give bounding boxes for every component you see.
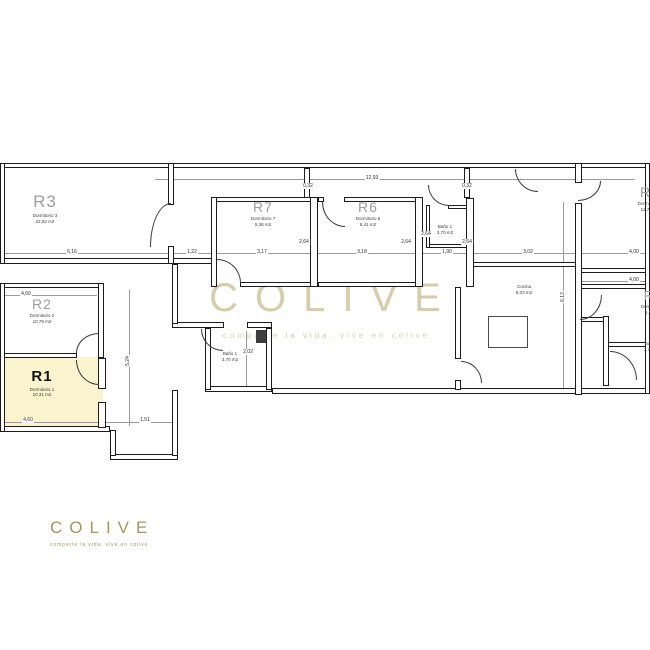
room-code: R6	[328, 200, 408, 215]
room-label-r1: R1Dormitorio 110,31 m2	[0, 369, 84, 398]
wall	[240, 282, 314, 287]
dimension-label: 0,32	[461, 183, 473, 189]
wall	[318, 282, 418, 287]
wall	[575, 163, 582, 183]
door-arc	[150, 203, 171, 247]
dimension-label: 0,32	[302, 183, 314, 189]
wall	[415, 197, 423, 287]
wall	[98, 402, 106, 428]
logo-tagline: comparte la vida, vive en colive	[50, 542, 154, 548]
wall	[172, 264, 178, 324]
room-area: 3,70 m2	[632, 348, 650, 353]
room-area: 8,41 m2	[328, 223, 408, 228]
room-label-bano2: Baño 23,70 m2	[632, 340, 650, 353]
wall	[0, 426, 110, 432]
room-code: R7	[223, 200, 303, 215]
room-code: R3	[5, 193, 85, 212]
door-arc	[578, 181, 601, 201]
dimension-label: 4,60	[22, 417, 34, 423]
door-arc	[217, 259, 241, 283]
wall	[168, 163, 174, 205]
room-name: Dormitorio 3	[5, 214, 85, 219]
wall	[0, 353, 77, 358]
wall	[172, 390, 178, 456]
wall	[0, 163, 650, 168]
dimension-line	[155, 179, 635, 180]
dimension-label: 6,16	[66, 249, 78, 255]
room-area: 3,70 m2	[208, 358, 252, 363]
wall	[0, 258, 212, 264]
room-area: 10,31 m2	[0, 393, 84, 398]
room-area: 6,32 m2	[618, 311, 650, 316]
logo-text: COLIVE	[50, 518, 154, 538]
wall	[0, 283, 102, 288]
wall	[310, 197, 318, 287]
room-area: 10,79 m2	[2, 320, 82, 325]
door-arc	[610, 351, 637, 380]
room-code: R1	[0, 369, 84, 386]
room-label-r2: R2Dormitorio 210,79 m2	[2, 297, 82, 325]
dimension-label: 5,24	[125, 355, 131, 367]
door-arc	[428, 185, 449, 206]
dimension-label: 12,93	[365, 175, 380, 181]
room-area: 8,03 m2	[498, 291, 550, 296]
room-label-r3: R3Dormitorio 322,82 m2	[5, 193, 85, 225]
dimension-label: 3,18	[356, 249, 368, 255]
dimension-label: 2,64	[420, 231, 432, 237]
wall	[266, 328, 272, 390]
room-label-r5: R5Dormitorio 56,32 m2	[618, 289, 650, 316]
colive-logo: COLIVE comparte la vida, vive en colive	[50, 518, 154, 548]
door-arc	[515, 169, 538, 192]
dimension-label: 1,90	[441, 249, 453, 255]
dimension-label: 2,64	[400, 239, 412, 245]
wall	[603, 316, 609, 386]
wall	[110, 454, 178, 460]
floor-plan-drawing: R3Dormitorio 322,82 m2R2Dormitorio 210,7…	[0, 0, 650, 650]
room-label-r7: R7Dormitorio 75,38 m2	[223, 200, 303, 228]
wall	[98, 358, 106, 389]
dimension-label: 2,64	[298, 239, 310, 245]
dimension-label: 4,60	[20, 291, 32, 297]
wall	[455, 287, 461, 359]
room-code: R2	[2, 297, 82, 312]
wall	[172, 322, 224, 328]
wall	[470, 262, 577, 267]
room-area: 22,82 m2	[5, 220, 85, 225]
dimension-label: 4,00	[628, 277, 640, 283]
dimension-label: 4,00	[628, 249, 640, 255]
room-label-r6: R6Dormitorio 68,41 m2	[328, 200, 408, 228]
dimension-line	[0, 253, 650, 254]
room-label-r4: R4Dormitorio 412,73 m2	[612, 185, 650, 213]
dimension-label: 1,51	[139, 417, 151, 423]
wall	[110, 430, 116, 456]
dimension-label: 2,64	[461, 239, 473, 245]
door-arc	[461, 361, 482, 383]
dimension-label: 6,12	[560, 291, 566, 303]
wall	[205, 386, 272, 392]
room-code: R5	[618, 289, 650, 303]
dimension-label: 3,17	[256, 249, 268, 255]
dimension-label: 2,02	[242, 349, 254, 355]
dimension-label: 3,02	[522, 249, 534, 255]
wall	[168, 246, 174, 264]
room-area: 12,73 m2	[612, 208, 650, 213]
dimension-label: 1,22	[186, 249, 198, 255]
wall	[272, 388, 650, 394]
kitchen-island	[488, 316, 528, 348]
duct-shaft	[256, 330, 266, 343]
wall	[578, 268, 650, 273]
room-label-cocina: Cocina8,03 m2	[498, 283, 550, 296]
room-area: 5,38 m2	[223, 223, 303, 228]
room-code: R4	[612, 185, 650, 200]
